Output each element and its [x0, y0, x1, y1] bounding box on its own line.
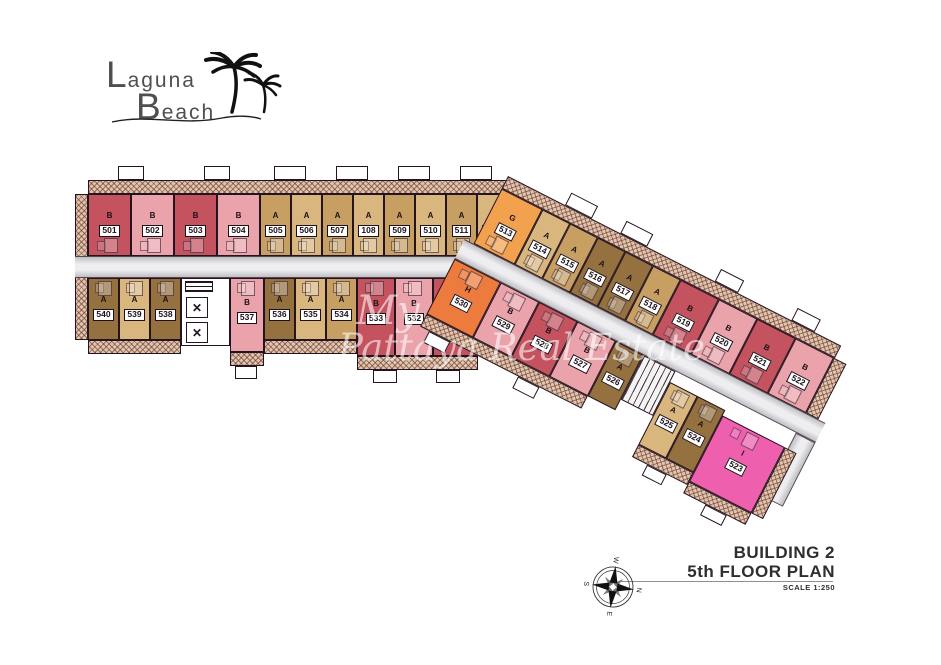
unit-537: B537: [230, 278, 264, 352]
unit-504: B504: [217, 194, 260, 256]
building-title: BUILDING 2: [687, 544, 835, 563]
unit-108: A108: [353, 194, 384, 256]
unit-538: A538: [150, 278, 181, 340]
floor-plan-image: Laguna Beach My Pattaya Rea: [0, 0, 941, 665]
logo-swoosh: [112, 110, 262, 128]
unit-506: A506: [291, 194, 322, 256]
elevator-shaft: [185, 281, 213, 292]
unit-503: B503: [174, 194, 217, 256]
balcony: [460, 166, 492, 180]
compass-south-label: S: [582, 581, 590, 587]
elevator-core: ✕ ✕: [181, 278, 230, 346]
elevator-icon: ✕: [186, 297, 208, 318]
unit-505: A505: [260, 194, 291, 256]
balcony-hatch-bottom: [88, 340, 181, 354]
balcony: [373, 370, 397, 383]
elevator-icon: ✕: [186, 322, 208, 343]
balcony: [336, 166, 368, 180]
floor-title: 5th FLOOR PLAN: [687, 563, 835, 582]
unit-540: A540: [88, 278, 119, 340]
watermark-line2: Pattaya Real Estate: [338, 326, 705, 369]
balcony: [235, 366, 257, 379]
unit-536: A536: [264, 278, 295, 340]
compass-east-label: E: [605, 611, 613, 617]
balcony: [118, 166, 144, 180]
unit-535: A535: [295, 278, 326, 340]
scale-label: SCALE 1:250: [687, 583, 835, 592]
balcony: [204, 166, 230, 180]
unit-539: A539: [119, 278, 150, 340]
laguna-beach-logo: Laguna Beach: [98, 52, 288, 138]
compass-north-label: N: [635, 587, 643, 593]
unit-509: A509: [384, 194, 415, 256]
balcony: [398, 166, 430, 180]
unit-510: A510: [415, 194, 446, 256]
compass-west-label: W: [611, 556, 619, 564]
balcony-hatch-top: [88, 180, 508, 194]
unit-501: B501: [88, 194, 131, 256]
logo-letter-l: L: [106, 54, 128, 95]
title-block: BUILDING 2 5th FLOOR PLAN SCALE 1:250: [687, 544, 835, 592]
balcony-hatch-bottom: [230, 352, 264, 366]
compass-rose-icon: N E S W: [578, 552, 647, 621]
palm-tree-icon: [198, 52, 284, 118]
balcony: [274, 166, 306, 180]
unit-507: A507: [322, 194, 353, 256]
unit-502: B502: [131, 194, 174, 256]
